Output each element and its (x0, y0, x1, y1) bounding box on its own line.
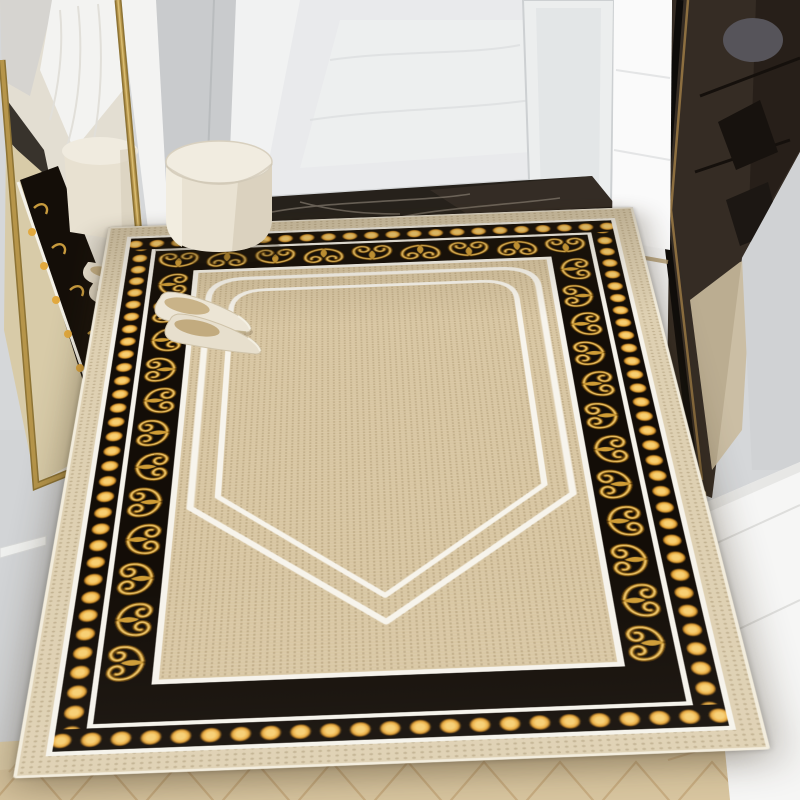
rug-shield-lines (159, 259, 617, 679)
rug-perspective-wrap (0, 0, 800, 800)
doormat (13, 207, 770, 778)
entryway-scene (0, 0, 800, 800)
rug-field (159, 259, 617, 679)
